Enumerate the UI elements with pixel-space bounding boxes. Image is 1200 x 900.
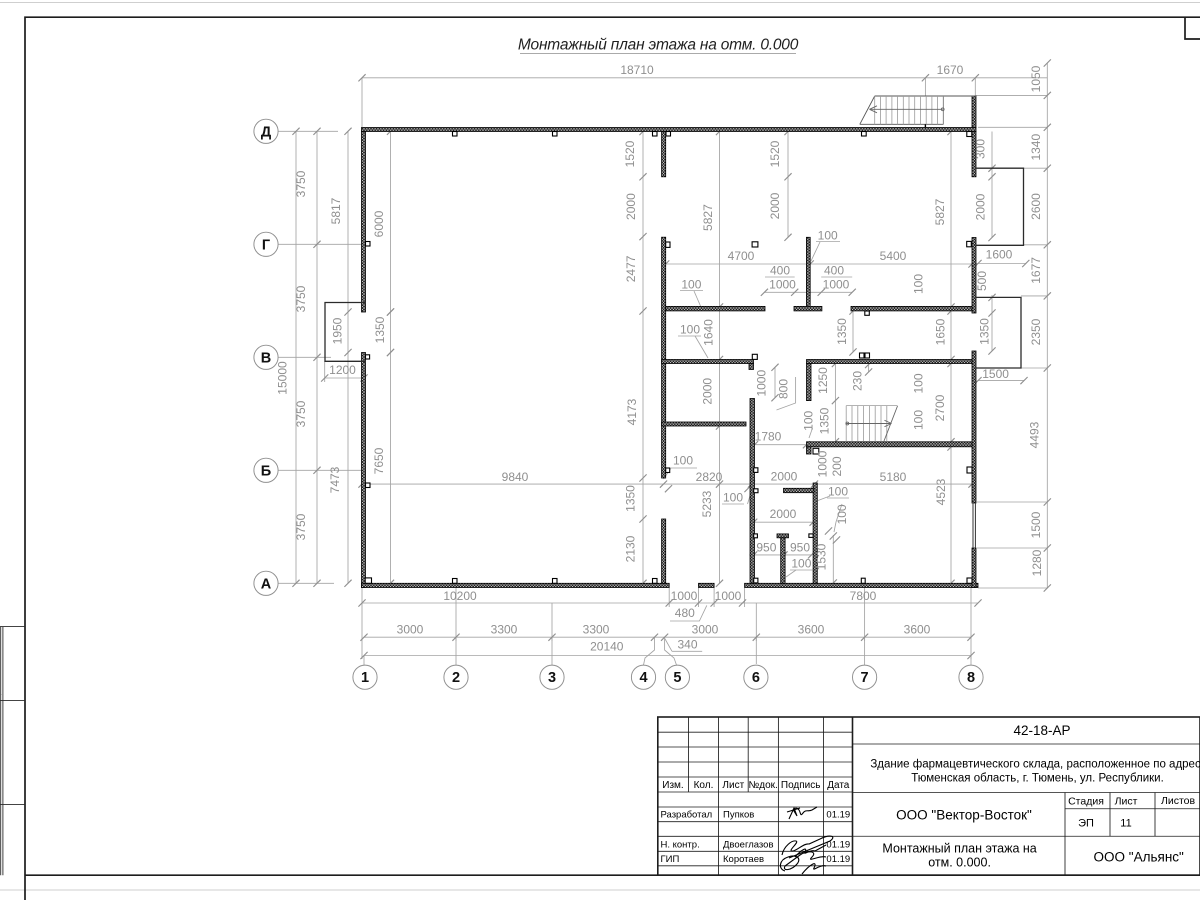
svg-text:1677: 1677 (1029, 257, 1043, 284)
svg-text:1600: 1600 (986, 248, 1013, 262)
svg-text:100: 100 (912, 274, 926, 294)
svg-text:Н. контр.: Н. контр. (661, 840, 700, 851)
svg-text:А: А (261, 576, 272, 592)
svg-text:Лист: Лист (722, 780, 744, 791)
svg-text:Двоеглазов: Двоеглазов (723, 840, 774, 851)
svg-text:4: 4 (639, 670, 647, 686)
svg-text:200: 200 (830, 456, 844, 476)
svg-text:6000: 6000 (372, 210, 386, 237)
svg-text:Подпись: Подпись (781, 780, 821, 791)
svg-text:1670: 1670 (937, 63, 964, 77)
svg-text:3300: 3300 (491, 622, 518, 636)
svg-text:5400: 5400 (880, 249, 907, 263)
svg-text:950: 950 (756, 541, 776, 555)
svg-text:1350: 1350 (624, 485, 638, 512)
svg-text:7473: 7473 (328, 466, 342, 493)
svg-text:Разработал: Разработал (661, 810, 713, 821)
svg-text:8: 8 (967, 670, 975, 686)
svg-text:7800: 7800 (850, 589, 877, 603)
svg-text:2000: 2000 (770, 507, 797, 521)
svg-text:Изм.: Изм. (662, 780, 683, 791)
svg-text:9840: 9840 (502, 470, 529, 484)
svg-text:1000: 1000 (671, 589, 698, 603)
svg-text:480: 480 (675, 606, 695, 620)
svg-text:5233: 5233 (700, 490, 714, 517)
svg-text:500: 500 (975, 271, 989, 291)
svg-text:Б: Б (261, 463, 271, 479)
svg-text:01.19: 01.19 (826, 810, 850, 821)
svg-text:340: 340 (677, 638, 697, 652)
svg-text:1050: 1050 (1029, 65, 1043, 92)
svg-text:1000: 1000 (715, 589, 742, 603)
svg-text:3750: 3750 (294, 170, 308, 197)
svg-text:1950: 1950 (331, 317, 345, 344)
svg-text:400: 400 (770, 264, 790, 278)
svg-text:3000: 3000 (692, 622, 719, 636)
svg-text:5180: 5180 (880, 470, 907, 484)
svg-text:1520: 1520 (623, 140, 637, 167)
svg-text:Лист: Лист (1115, 796, 1138, 808)
svg-text:6: 6 (752, 670, 760, 686)
svg-text:Монтажный план этажа на: Монтажный план этажа на (882, 842, 1036, 856)
svg-text:2: 2 (452, 670, 460, 686)
svg-text:3: 3 (548, 670, 556, 686)
svg-text:1500: 1500 (1029, 511, 1043, 538)
svg-text:1520: 1520 (768, 140, 782, 167)
svg-text:3600: 3600 (798, 622, 825, 636)
svg-text:3000: 3000 (397, 622, 424, 636)
svg-text:1000: 1000 (769, 278, 796, 292)
svg-text:ГИП: ГИП (661, 854, 680, 865)
svg-text:01.19: 01.19 (826, 854, 850, 865)
svg-text:ЭП: ЭП (1078, 818, 1094, 830)
svg-text:100: 100 (673, 454, 693, 468)
svg-text:230: 230 (851, 371, 865, 391)
svg-text:300: 300 (974, 139, 988, 159)
svg-text:Дата: Дата (827, 780, 850, 791)
svg-text:100: 100 (912, 373, 926, 393)
svg-text:3600: 3600 (904, 622, 931, 636)
svg-text:1350: 1350 (835, 318, 849, 345)
svg-text:ООО "Альянс": ООО "Альянс" (1094, 850, 1184, 865)
svg-text:1000: 1000 (754, 370, 768, 397)
svg-text:1780: 1780 (755, 430, 782, 444)
svg-text:11: 11 (1120, 818, 1131, 830)
svg-text:Стадия: Стадия (1068, 796, 1104, 808)
svg-text:2600: 2600 (1029, 193, 1043, 220)
svg-text:3750: 3750 (294, 400, 308, 427)
svg-text:100: 100 (681, 277, 701, 291)
svg-text:Тюменская область, г. Тюмень,: Тюменская область, г. Тюмень, ул. Респуб… (911, 773, 1164, 785)
svg-text:4173: 4173 (625, 398, 639, 425)
svg-text:Монтажный план этажа на отм. 0: Монтажный план этажа на отм. 0.000 (518, 37, 799, 54)
svg-text:100: 100 (818, 229, 838, 243)
svg-text:2350: 2350 (1029, 318, 1043, 345)
svg-text:2700: 2700 (933, 394, 947, 421)
svg-text:1280: 1280 (1030, 549, 1044, 576)
svg-text:1500: 1500 (982, 367, 1009, 381)
svg-text:5: 5 (673, 670, 681, 686)
svg-text:20140: 20140 (590, 639, 624, 653)
svg-text:100: 100 (791, 557, 811, 571)
svg-text:100: 100 (723, 491, 743, 505)
svg-text:4700: 4700 (728, 249, 755, 263)
svg-text:1650: 1650 (934, 318, 948, 345)
svg-text:1350: 1350 (818, 407, 832, 434)
svg-text:10200: 10200 (443, 589, 477, 603)
svg-text:4493: 4493 (1028, 421, 1042, 448)
svg-text:1200: 1200 (329, 363, 356, 377)
svg-text:7650: 7650 (372, 447, 386, 474)
svg-text:Пупков: Пупков (723, 810, 754, 821)
svg-text:1000: 1000 (823, 278, 850, 292)
svg-text:100: 100 (835, 504, 849, 524)
svg-text:2820: 2820 (696, 470, 723, 484)
svg-text:Коротаев: Коротаев (723, 854, 764, 865)
svg-text:отм. 0.000.: отм. 0.000. (928, 856, 991, 870)
svg-text:18710: 18710 (620, 63, 654, 77)
svg-text:2000: 2000 (700, 378, 714, 405)
svg-text:5827: 5827 (701, 204, 715, 231)
svg-text:В: В (261, 350, 271, 366)
svg-text:ООО "Вектор-Восток": ООО "Вектор-Восток" (896, 808, 1032, 823)
svg-text:1340: 1340 (1029, 134, 1043, 161)
svg-text:3750: 3750 (294, 285, 308, 312)
svg-text:100: 100 (912, 410, 926, 430)
svg-text:1350: 1350 (978, 318, 992, 345)
svg-text:1640: 1640 (702, 319, 716, 346)
svg-text:2000: 2000 (768, 192, 782, 219)
svg-text:5817: 5817 (329, 197, 343, 224)
svg-text:Здание фармацевтического склад: Здание фармацевтического склада, располо… (870, 759, 1200, 771)
svg-text:1: 1 (361, 670, 369, 686)
svg-text:100: 100 (680, 323, 700, 337)
svg-text:400: 400 (824, 264, 844, 278)
svg-text:100: 100 (828, 485, 848, 499)
svg-text:3300: 3300 (583, 622, 610, 636)
svg-text:Г: Г (262, 237, 270, 253)
svg-text:42-18-АР: 42-18-АР (1013, 723, 1070, 738)
svg-text:7: 7 (861, 670, 869, 686)
svg-text:1000: 1000 (816, 450, 830, 477)
svg-text:2000: 2000 (624, 193, 638, 220)
svg-text:4523: 4523 (934, 478, 948, 505)
svg-text:2000: 2000 (771, 470, 798, 484)
svg-text:100: 100 (801, 410, 815, 430)
svg-text:1250: 1250 (816, 367, 830, 394)
svg-text:3750: 3750 (294, 513, 308, 540)
svg-text:Кол.: Кол. (694, 780, 714, 791)
svg-text:1530: 1530 (815, 543, 829, 570)
svg-text:Д: Д (261, 124, 272, 140)
svg-text:Листов: Листов (1161, 795, 1196, 807)
svg-text:.: . (0, 694, 4, 695)
svg-text:15000: 15000 (276, 361, 290, 395)
svg-text:2000: 2000 (974, 193, 988, 220)
svg-text:№док.: №док. (749, 780, 778, 791)
svg-text:950: 950 (790, 541, 810, 555)
svg-text:1350: 1350 (373, 316, 387, 343)
svg-text:800: 800 (777, 379, 791, 399)
svg-text:5827: 5827 (933, 198, 947, 225)
svg-text:2477: 2477 (624, 255, 638, 282)
svg-text:2130: 2130 (624, 535, 638, 562)
